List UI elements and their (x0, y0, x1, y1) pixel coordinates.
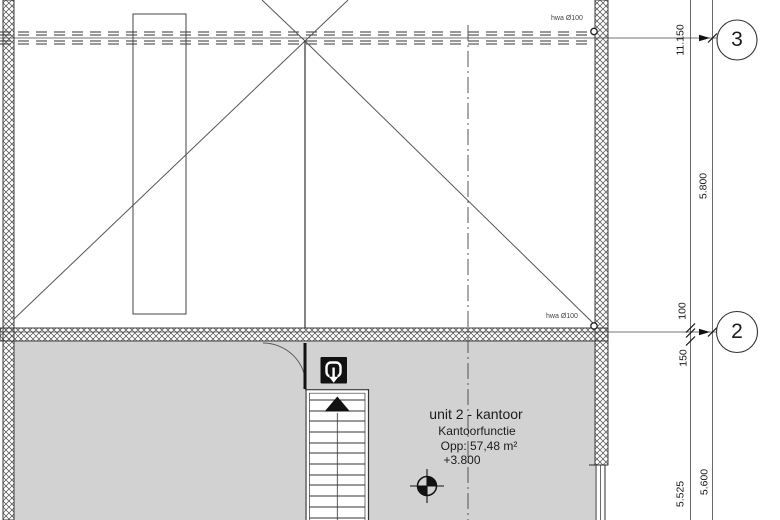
dimension-lines (691, 0, 713, 520)
hwa-drain-icon-top (591, 28, 597, 34)
room-area-label: Opp: 57,48 m² (394, 439, 564, 453)
grid-bubble-3-label: 3 (717, 20, 757, 60)
room-level-label: +3.800 (377, 453, 547, 467)
room-name-label: unit 2 - kantoor (391, 406, 561, 422)
dim-5600: 5.600 (699, 450, 712, 514)
hwa-drain-icon-bottom (591, 323, 597, 329)
right-wall (595, 0, 608, 465)
dim-11150: 11.150 (675, 8, 688, 72)
roof-diagonals (13, 0, 594, 324)
dim-150: 150 (678, 326, 691, 390)
hwa-label-bottom: hwa Ø100 (537, 313, 587, 320)
dim-5800: 5.800 (698, 154, 711, 218)
stair-exit-icon (321, 357, 348, 384)
left-wall (3, 0, 14, 520)
room-function-label: Kantoorfunctie (392, 424, 562, 438)
floor-plan-canvas: hwa Ø100 hwa Ø100 unit 2 - kantoor Kanto… (0, 0, 780, 520)
plan-linework (0, 0, 780, 520)
skylight (133, 14, 186, 314)
hwa-label-top: hwa Ø100 (542, 15, 592, 22)
grid2-wall (0, 328, 608, 341)
grid-lines (0, 38, 717, 332)
grid-bubbles (717, 20, 758, 353)
grid-bubble-2-label: 2 (717, 312, 757, 352)
dim-5525: 5.525 (675, 462, 688, 520)
